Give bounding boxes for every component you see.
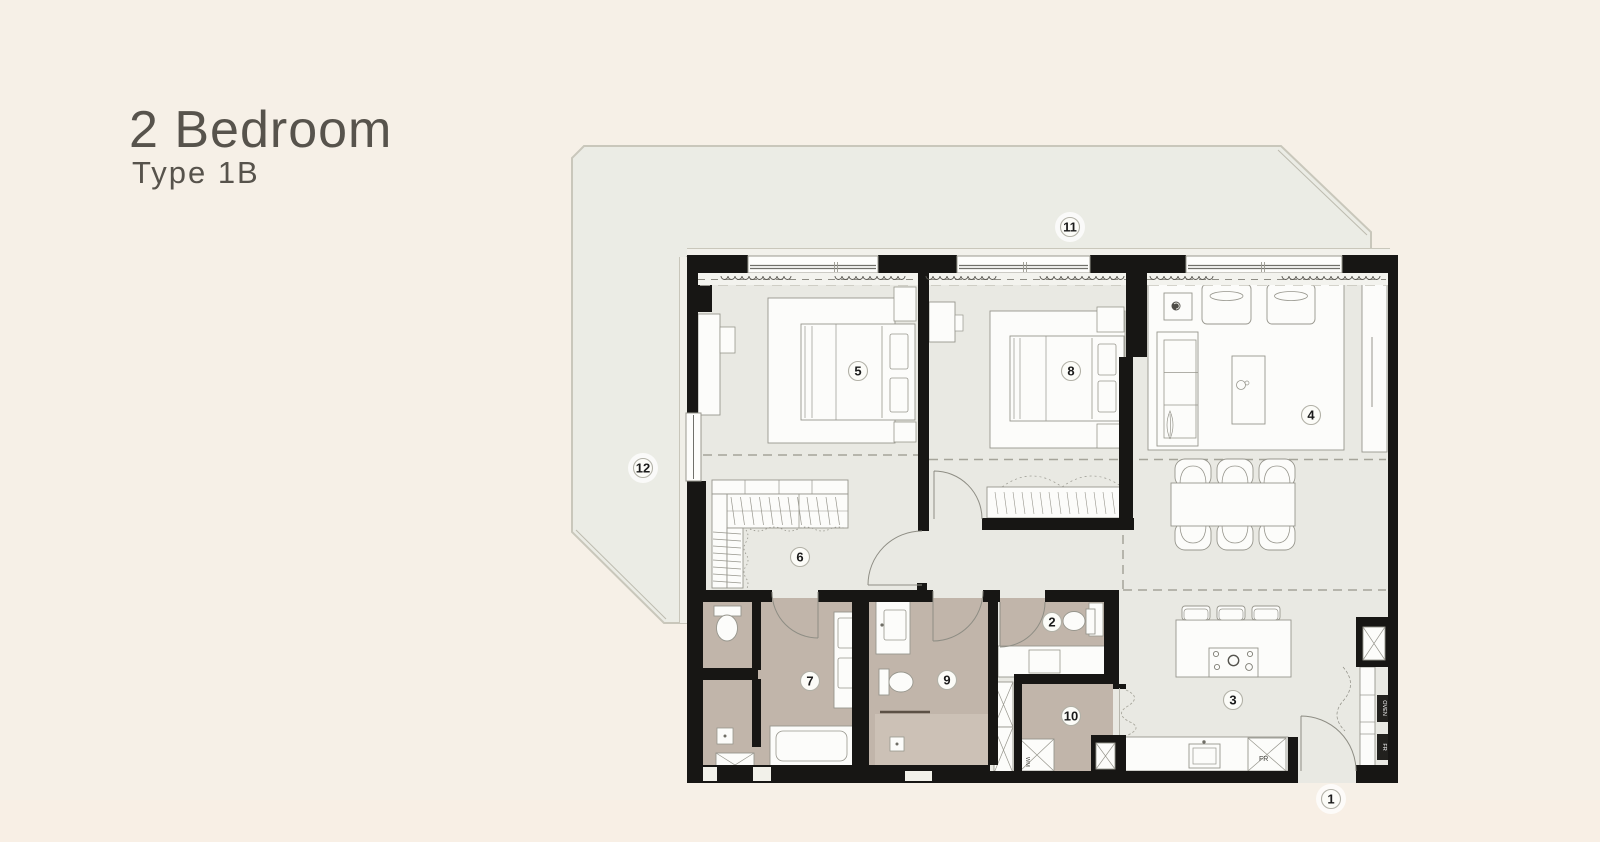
svg-text:4: 4 [1307,408,1315,423]
svg-text:1: 1 [1327,792,1334,807]
svg-text:WM: WM [1024,757,1030,767]
svg-text:5: 5 [854,364,861,379]
svg-text:OVEN: OVEN [1381,700,1387,716]
svg-text:6: 6 [796,550,803,565]
svg-text:9: 9 [943,673,950,688]
svg-text:3: 3 [1229,693,1236,708]
svg-text:12: 12 [636,461,650,476]
svg-text:FR: FR [1381,743,1387,750]
svg-text:FR: FR [1259,756,1268,763]
svg-text:10: 10 [1064,709,1078,724]
svg-text:11: 11 [1063,220,1077,235]
svg-text:2: 2 [1048,615,1055,630]
svg-text:7: 7 [806,674,813,689]
svg-text:8: 8 [1067,364,1074,379]
